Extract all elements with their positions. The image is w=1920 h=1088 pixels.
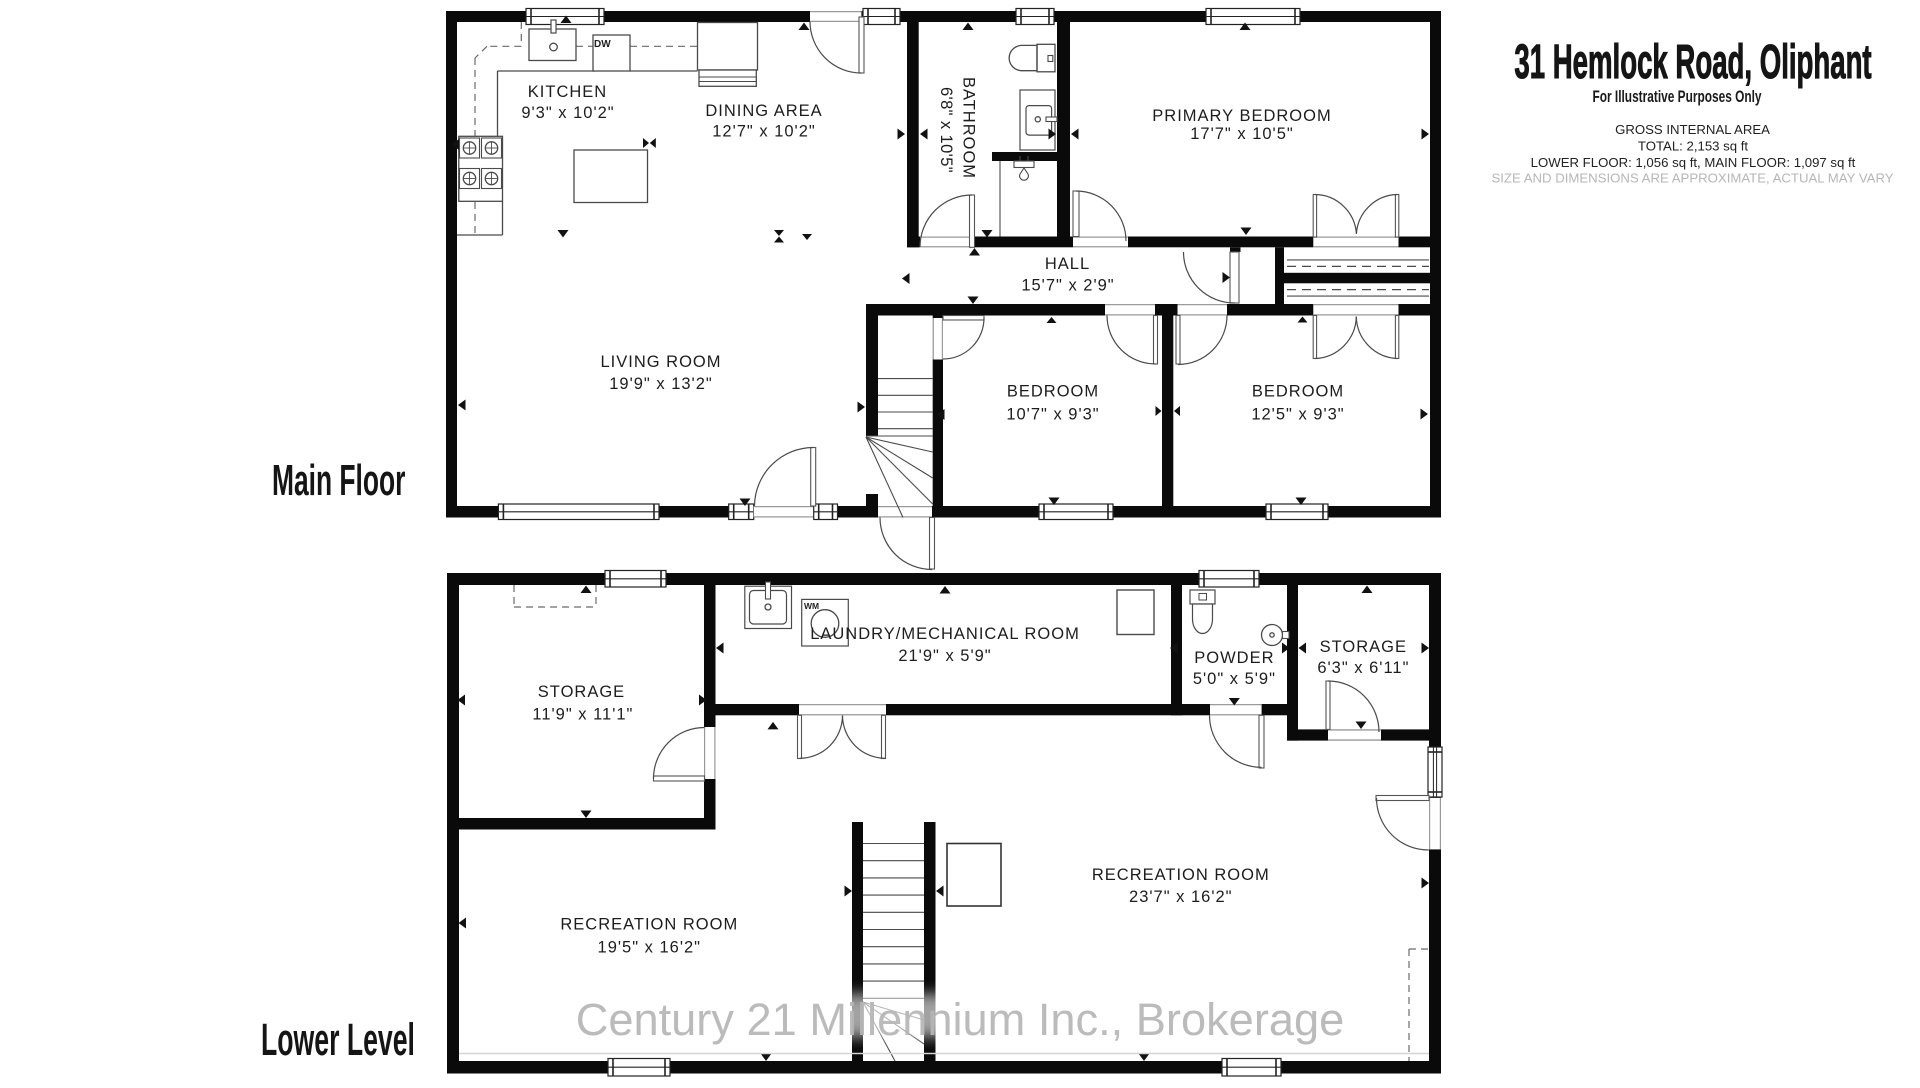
svg-text:31 Hemlock Road, Oliphant: 31 Hemlock Road, Oliphant xyxy=(1514,36,1871,89)
svg-text:23'7" x 16'2": 23'7" x 16'2" xyxy=(1129,888,1233,906)
svg-text:Lower Level: Lower Level xyxy=(261,1015,415,1065)
svg-text:Century 21 Millennium Inc., Br: Century 21 Millennium Inc., Brokerage xyxy=(576,994,1345,1045)
svg-text:HALL: HALL xyxy=(1045,255,1090,273)
svg-text:POWDER: POWDER xyxy=(1194,649,1274,667)
svg-text:SIZE AND DIMENSIONS ARE APPROX: SIZE AND DIMENSIONS ARE APPROXIMATE, ACT… xyxy=(1491,171,1893,186)
svg-text:17'7" x 10'5": 17'7" x 10'5" xyxy=(1190,125,1294,143)
svg-text:LOWER FLOOR: 1,056 sq ft, MAIN: LOWER FLOOR: 1,056 sq ft, MAIN FLOOR: 1,… xyxy=(1531,155,1856,170)
svg-text:5'0" x 5'9": 5'0" x 5'9" xyxy=(1193,670,1276,688)
svg-text:12'7" x 10'2": 12'7" x 10'2" xyxy=(712,123,816,141)
svg-text:11'9" x 11'1": 11'9" x 11'1" xyxy=(532,706,633,724)
svg-text:TOTAL: 2,153 sq ft: TOTAL: 2,153 sq ft xyxy=(1638,139,1749,154)
svg-text:12'5" x 9'3": 12'5" x 9'3" xyxy=(1251,406,1344,424)
svg-text:RECREATION ROOM: RECREATION ROOM xyxy=(560,916,738,934)
svg-text:GROSS INTERNAL AREA: GROSS INTERNAL AREA xyxy=(1615,122,1770,137)
svg-text:21'9" x 5'9": 21'9" x 5'9" xyxy=(898,647,991,665)
svg-text:19'5" x 16'2": 19'5" x 16'2" xyxy=(598,939,702,957)
svg-text:Main Floor: Main Floor xyxy=(272,455,405,505)
svg-text:15'7" x 2'9": 15'7" x 2'9" xyxy=(1021,277,1114,295)
svg-text:KITCHEN: KITCHEN xyxy=(528,83,607,101)
svg-text:RECREATION ROOM: RECREATION ROOM xyxy=(1092,866,1270,884)
svg-text:BEDROOM: BEDROOM xyxy=(1252,383,1344,401)
svg-text:BATHROOM: BATHROOM xyxy=(960,77,978,179)
svg-text:DW: DW xyxy=(594,39,611,50)
svg-text:6'3" x 6'11": 6'3" x 6'11" xyxy=(1317,659,1409,677)
svg-text:DINING AREA: DINING AREA xyxy=(705,102,822,120)
svg-text:For Illustrative Purposes Only: For Illustrative Purposes Only xyxy=(1592,88,1762,107)
svg-text:10'7" x 9'3": 10'7" x 9'3" xyxy=(1006,406,1099,424)
svg-text:BEDROOM: BEDROOM xyxy=(1007,383,1099,401)
svg-text:LIVING ROOM: LIVING ROOM xyxy=(600,353,721,371)
svg-text:STORAGE: STORAGE xyxy=(538,683,625,701)
svg-text:6'8" x 10'5": 6'8" x 10'5" xyxy=(937,87,955,173)
svg-text:PRIMARY BEDROOM: PRIMARY BEDROOM xyxy=(1152,107,1331,125)
svg-text:STORAGE: STORAGE xyxy=(1320,638,1407,656)
svg-text:9'3" x 10'2": 9'3" x 10'2" xyxy=(521,104,614,122)
svg-text:19'9" x 13'2": 19'9" x 13'2" xyxy=(609,375,713,393)
svg-text:WM: WM xyxy=(804,601,819,611)
svg-text:LAUNDRY/MECHANICAL ROOM: LAUNDRY/MECHANICAL ROOM xyxy=(810,625,1080,643)
